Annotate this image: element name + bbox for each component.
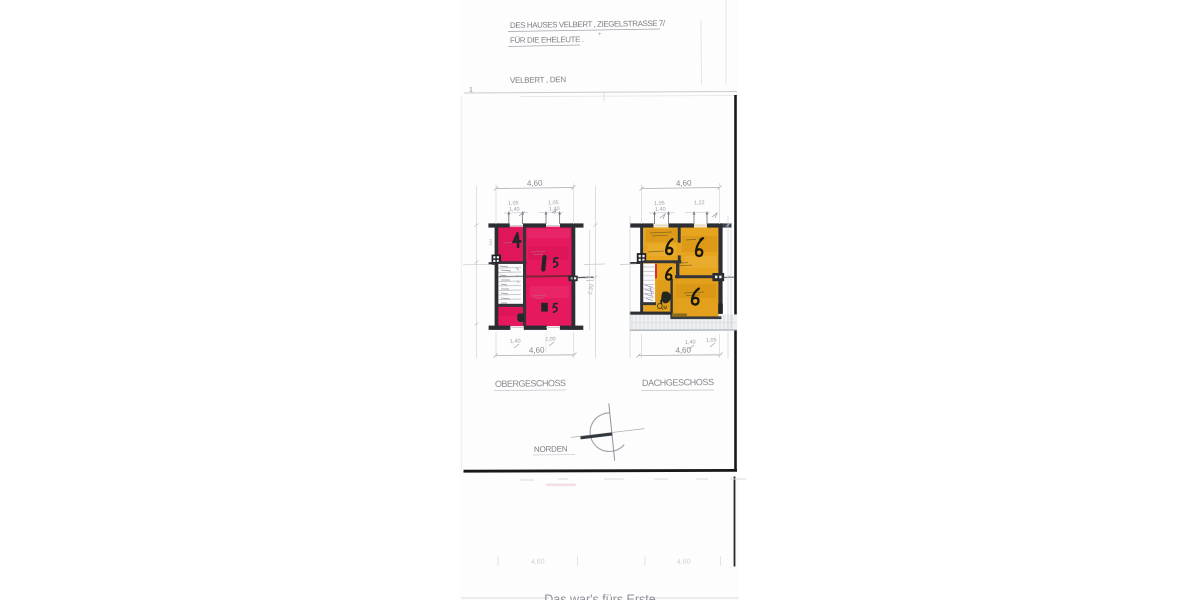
svg-text:+: + (598, 32, 602, 38)
svg-text:4,60: 4,60 (527, 178, 543, 188)
svg-text:4,60: 4,60 (531, 559, 545, 566)
svg-text:1,40: 1,40 (510, 338, 521, 345)
svg-text:OBERGESCHOSS: OBERGESCHOSS (495, 378, 566, 389)
svg-text:1,40: 1,40 (509, 207, 520, 213)
svg-text:4,60: 4,60 (676, 178, 692, 188)
svg-text:VELBERT , DEN: VELBERT , DEN (510, 75, 566, 85)
svg-text:DACHGESCHOSS: DACHGESCHOSS (642, 377, 714, 388)
svg-text:FÜR DIE EHELEUTE .: FÜR DIE EHELEUTE . (510, 35, 584, 45)
svg-text:2,00: 2,00 (545, 336, 556, 343)
svg-text:1,05: 1,05 (706, 337, 717, 344)
svg-text:Das war's fürs Erste: Das war's fürs Erste (544, 593, 655, 600)
svg-text:1: 1 (469, 87, 473, 94)
svg-text:1,40: 1,40 (655, 207, 666, 213)
svg-text:NORDEN: NORDEN (534, 444, 568, 454)
svg-text:4,60: 4,60 (529, 345, 545, 355)
svg-text:4,60: 4,60 (677, 559, 691, 566)
svg-text:4,60: 4,60 (675, 345, 691, 355)
svg-text:1,22: 1,22 (694, 200, 705, 206)
